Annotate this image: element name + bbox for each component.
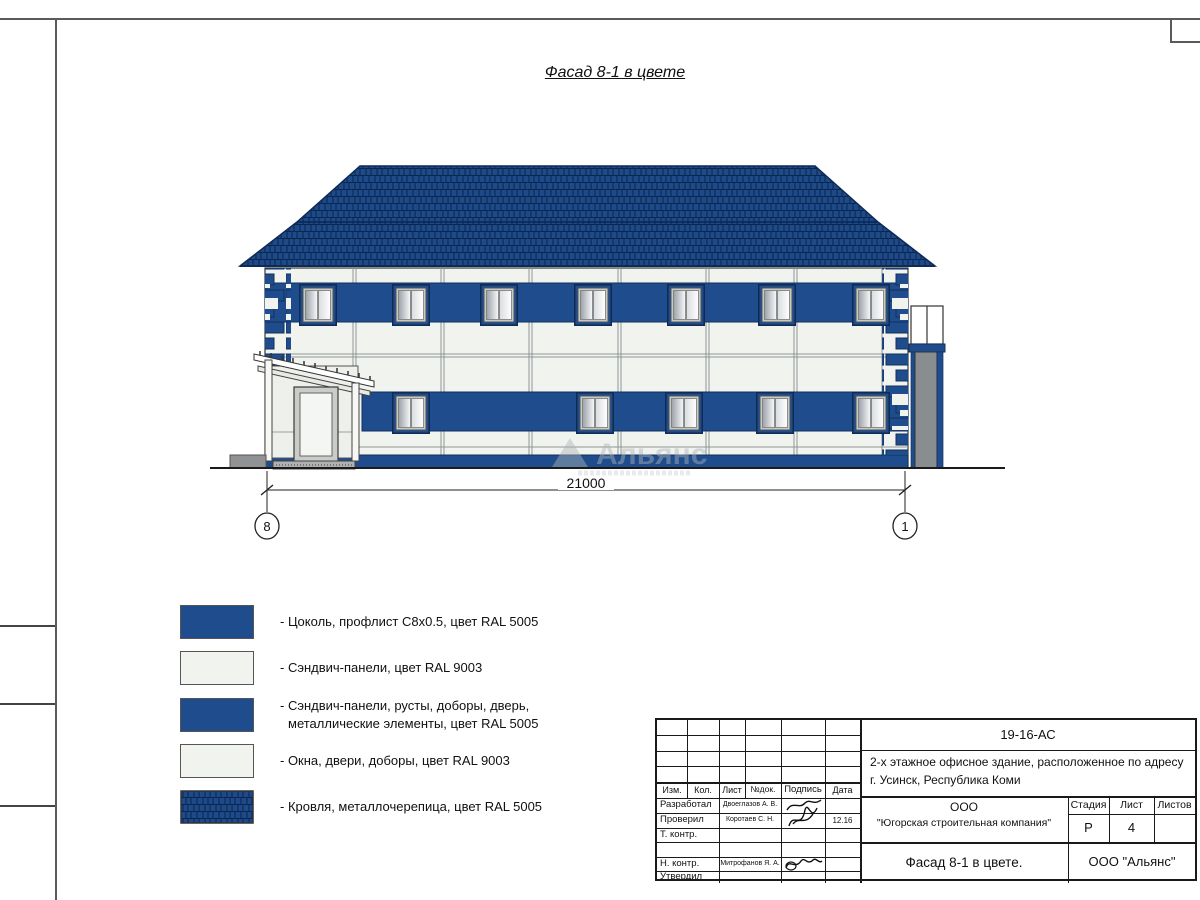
porch-post-right: [352, 383, 359, 461]
tb-role-developed: Разработал: [660, 798, 719, 813]
axis-8: 8: [263, 519, 270, 534]
tb-role-ncontrol: Н. контр.: [660, 857, 719, 871]
legend-item-plinth: - Цоколь, профлист С8х0.5, цвет RAL 5005: [180, 605, 538, 639]
legend-item-blue-elements: - Сэндвич-панели, русты, доборы, дверь, …: [180, 697, 538, 732]
svg-text:Альянс: Альянс: [596, 438, 707, 471]
legend-item-roof: - Кровля, металлочерепица, цвет RAL 5005: [180, 790, 542, 824]
tb-role-tcontrol: Т. контр.: [660, 828, 719, 842]
dimension-value: 21000: [567, 475, 606, 491]
legend-item-windows: - Окна, двери, доборы, цвет RAL 9003: [180, 744, 510, 778]
legend-label: - Цоколь, профлист С8х0.5, цвет RAL 5005: [280, 613, 538, 631]
roof: [240, 166, 935, 266]
signature-developed: [783, 796, 825, 832]
legend-swatch-roof-tiles: [180, 790, 254, 824]
tb-org: ООО "Альянс": [1068, 842, 1196, 883]
legend-swatch-white: [180, 744, 254, 778]
tb-sheet-label: Лист: [1109, 796, 1154, 814]
legend-swatch-blue: [180, 698, 254, 732]
tb-date-checked: 12.16: [825, 813, 860, 828]
tb-stage-label: Стадия: [1068, 796, 1109, 814]
tb-sheet-value: 4: [1109, 814, 1154, 842]
legend-swatch-white: [180, 651, 254, 685]
legend-label: - Сэндвич-панели, цвет RAL 9003: [280, 659, 482, 677]
tb-role-approved: Утвердил: [660, 871, 719, 883]
legend-label: - Сэндвич-панели, русты, доборы, дверь,: [280, 697, 538, 715]
signature-ncontrol: [783, 856, 825, 872]
tb-name-ncontrol: Митрофанов Я. А.: [719, 857, 781, 871]
tb-company: ООО "Югорская строительная компания": [860, 800, 1068, 842]
facade-drawing: Альянс 21000 8 1: [0, 0, 1200, 560]
legend-label: - Кровля, металлочерепица, цвет RAL 5005: [280, 798, 542, 816]
tb-company-line1: ООО: [860, 800, 1068, 814]
porch-post-left: [265, 360, 272, 461]
tb-stage-value: Р: [1068, 814, 1109, 842]
tb-description-line1: 2-х этажное офисное здание, расположенно…: [870, 753, 1196, 771]
drawing-sheet: { "drawing_title": "Фасад 8-1 в цвете", …: [0, 0, 1200, 900]
title-block: Изм. Кол. Лист №док. Подпись Дата Разраб…: [655, 718, 1197, 881]
axis-1: 1: [901, 519, 908, 534]
legend-label: металлические элементы, цвет RAL 5005: [280, 715, 538, 733]
tb-name-checked: Коротаев С. Н.: [719, 813, 781, 828]
dimension: 21000: [261, 471, 911, 512]
tb-col-data: Дата: [825, 782, 860, 798]
tb-col-list: Лист: [719, 782, 745, 798]
fold-mark: [0, 805, 55, 807]
tb-col-kol: Кол.: [687, 782, 719, 798]
tb-sheets-label: Листов: [1154, 796, 1195, 814]
tb-sheet-title: Фасад 8-1 в цвете.: [860, 842, 1068, 883]
entrance-porch: [230, 351, 374, 469]
tb-col-izm: Изм.: [657, 782, 687, 798]
tb-role-checked: Проверил: [660, 813, 719, 828]
tb-doc-number: 19-16-АС: [860, 720, 1196, 750]
axis-markers: 8 1: [255, 513, 917, 539]
tb-description: 2-х этажное офисное здание, расположенно…: [870, 753, 1196, 789]
chimney: [909, 306, 945, 468]
legend-item-panels: - Сэндвич-панели, цвет RAL 9003: [180, 651, 482, 685]
fold-mark: [0, 625, 55, 627]
legend-swatch-blue: [180, 605, 254, 639]
lower-band: [362, 392, 908, 431]
tb-role-empty: [660, 842, 719, 857]
side-ramp: [230, 455, 266, 468]
tb-company-line2: "Югорская строительная компания": [860, 817, 1068, 829]
tb-name-developed: Двоеглазов А. В.: [719, 798, 781, 813]
tb-description-line2: г. Усинск, Республика Коми: [870, 771, 1196, 789]
tb-sheets-value: [1154, 814, 1195, 842]
fold-mark: [0, 703, 55, 705]
legend-label: - Окна, двери, доборы, цвет RAL 9003: [280, 752, 510, 770]
tb-col-ndok: №док.: [745, 782, 781, 798]
